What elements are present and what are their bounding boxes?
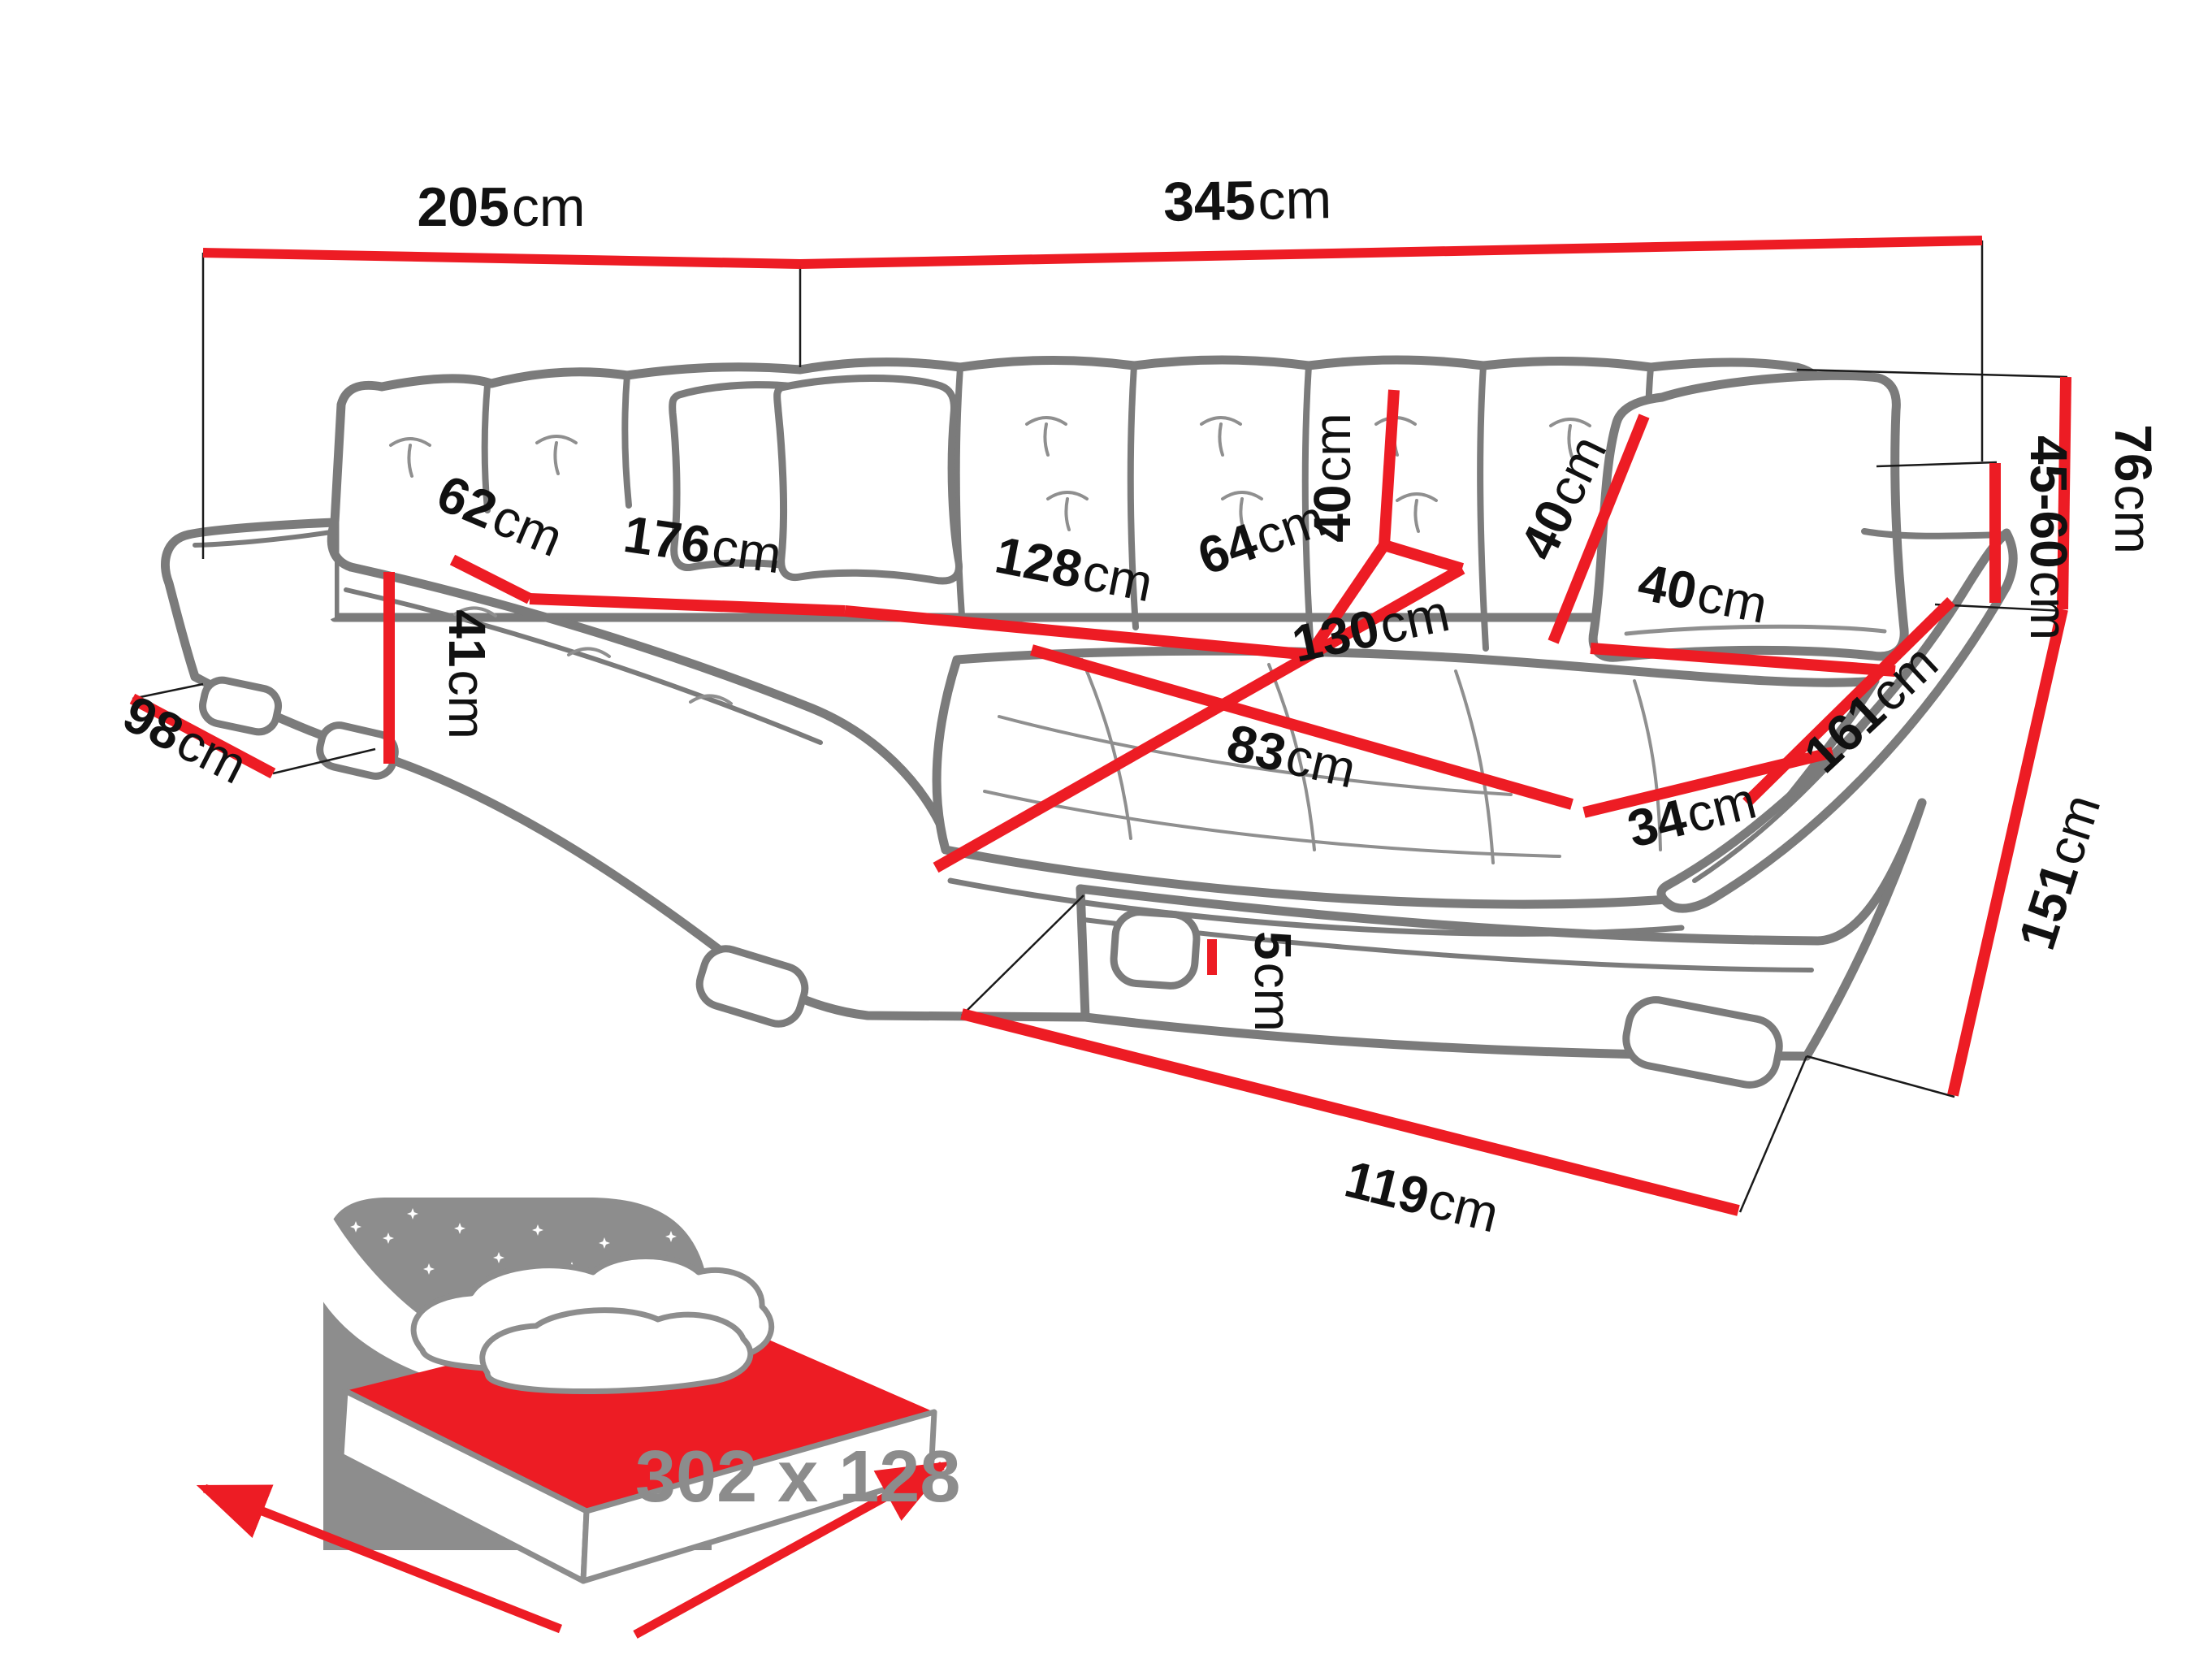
dim-label-backrest-cushion-height: 40cm: [1303, 413, 1361, 543]
dim-line-205: [203, 253, 800, 264]
dim-label-total-width-right: 345cm: [1162, 168, 1331, 233]
dim-line-345: [800, 240, 1982, 264]
helper-line: [962, 895, 1084, 1016]
dim-label-right-side-depth: 151cm: [2007, 787, 2112, 956]
diagram-canvas: 205cm 345cm 98cm 41cm 62cm 176cm 128cm 6…: [0, 0, 2212, 1659]
foot: [694, 943, 810, 1029]
dim-label-front-width: 119cm: [1340, 1150, 1504, 1244]
dim-label-seat-height: 41cm: [438, 609, 496, 739]
dim-label-leg-height: 5cm: [1244, 931, 1302, 1032]
right-panel-edge: [1864, 531, 2005, 536]
backrest-seam: [625, 375, 629, 505]
dim-label-total-width-left: 205cm: [417, 176, 585, 238]
helper-line: [1807, 1056, 1954, 1097]
sleeping-area-label: 302 x 128: [635, 1436, 960, 1518]
foot: [1112, 911, 1198, 988]
dim-label-total-height: 76cm: [2104, 424, 2162, 554]
sleeping-area-icon: 302 x 128: [205, 1198, 960, 1635]
corner-pillow-front: [777, 378, 959, 581]
chaise-base-left-edge: [1080, 889, 1085, 1017]
sofa-dimension-diagram: 205cm 345cm 98cm 41cm 62cm 176cm 128cm 6…: [0, 0, 2212, 1659]
dim-label-armrest-height-range: 45-60cm: [2019, 435, 2078, 640]
